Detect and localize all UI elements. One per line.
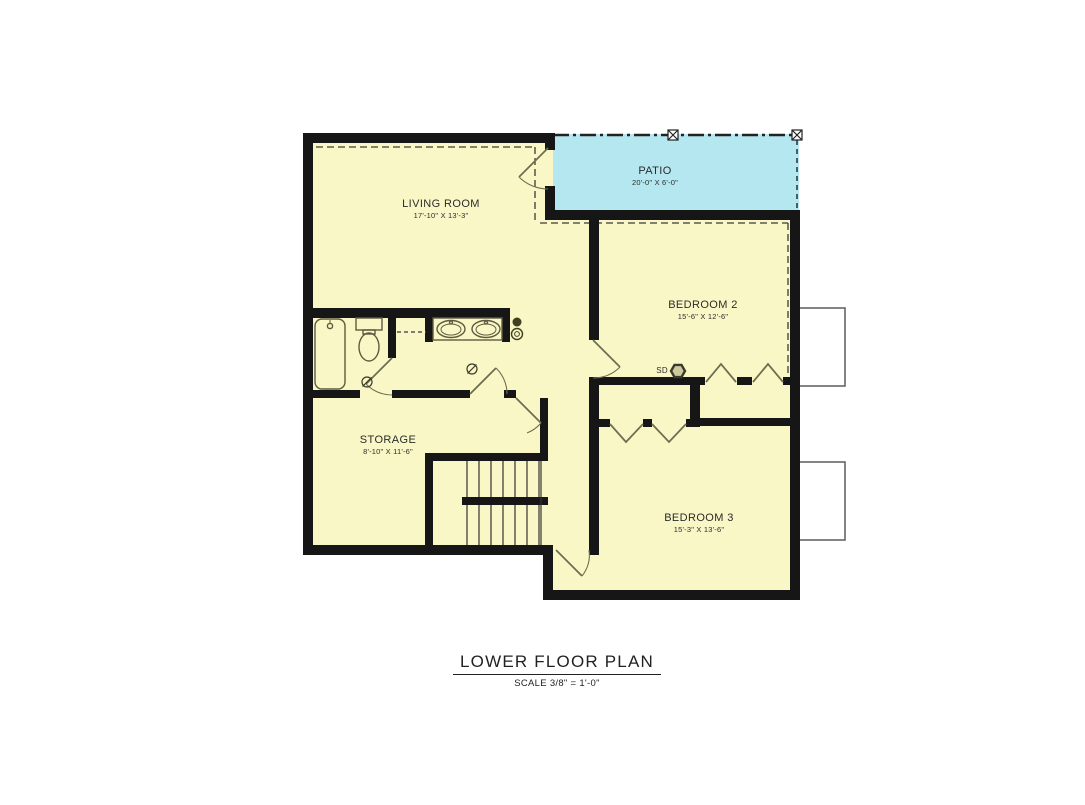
window-well [798, 462, 845, 540]
patio-post [792, 130, 802, 140]
title-block: LOWER FLOOR PLAN SCALE 3/8" = 1'-0" [387, 652, 727, 689]
patio-fill [553, 134, 799, 214]
stair-rail-wall [462, 497, 548, 505]
window-well [798, 308, 845, 386]
window-wells [798, 308, 845, 540]
patio-post [668, 130, 678, 140]
smoke-detector-icon [671, 365, 685, 377]
plan-scale-note: SCALE 3/8" = 1'-0" [387, 678, 727, 689]
plan-title: LOWER FLOOR PLAN [453, 652, 661, 675]
floor-plan-canvas: LIVING ROOM 17'-10" X 13'-3" PATIO 20'-0… [0, 0, 1085, 800]
smoke-detector-label: SD [646, 366, 668, 375]
